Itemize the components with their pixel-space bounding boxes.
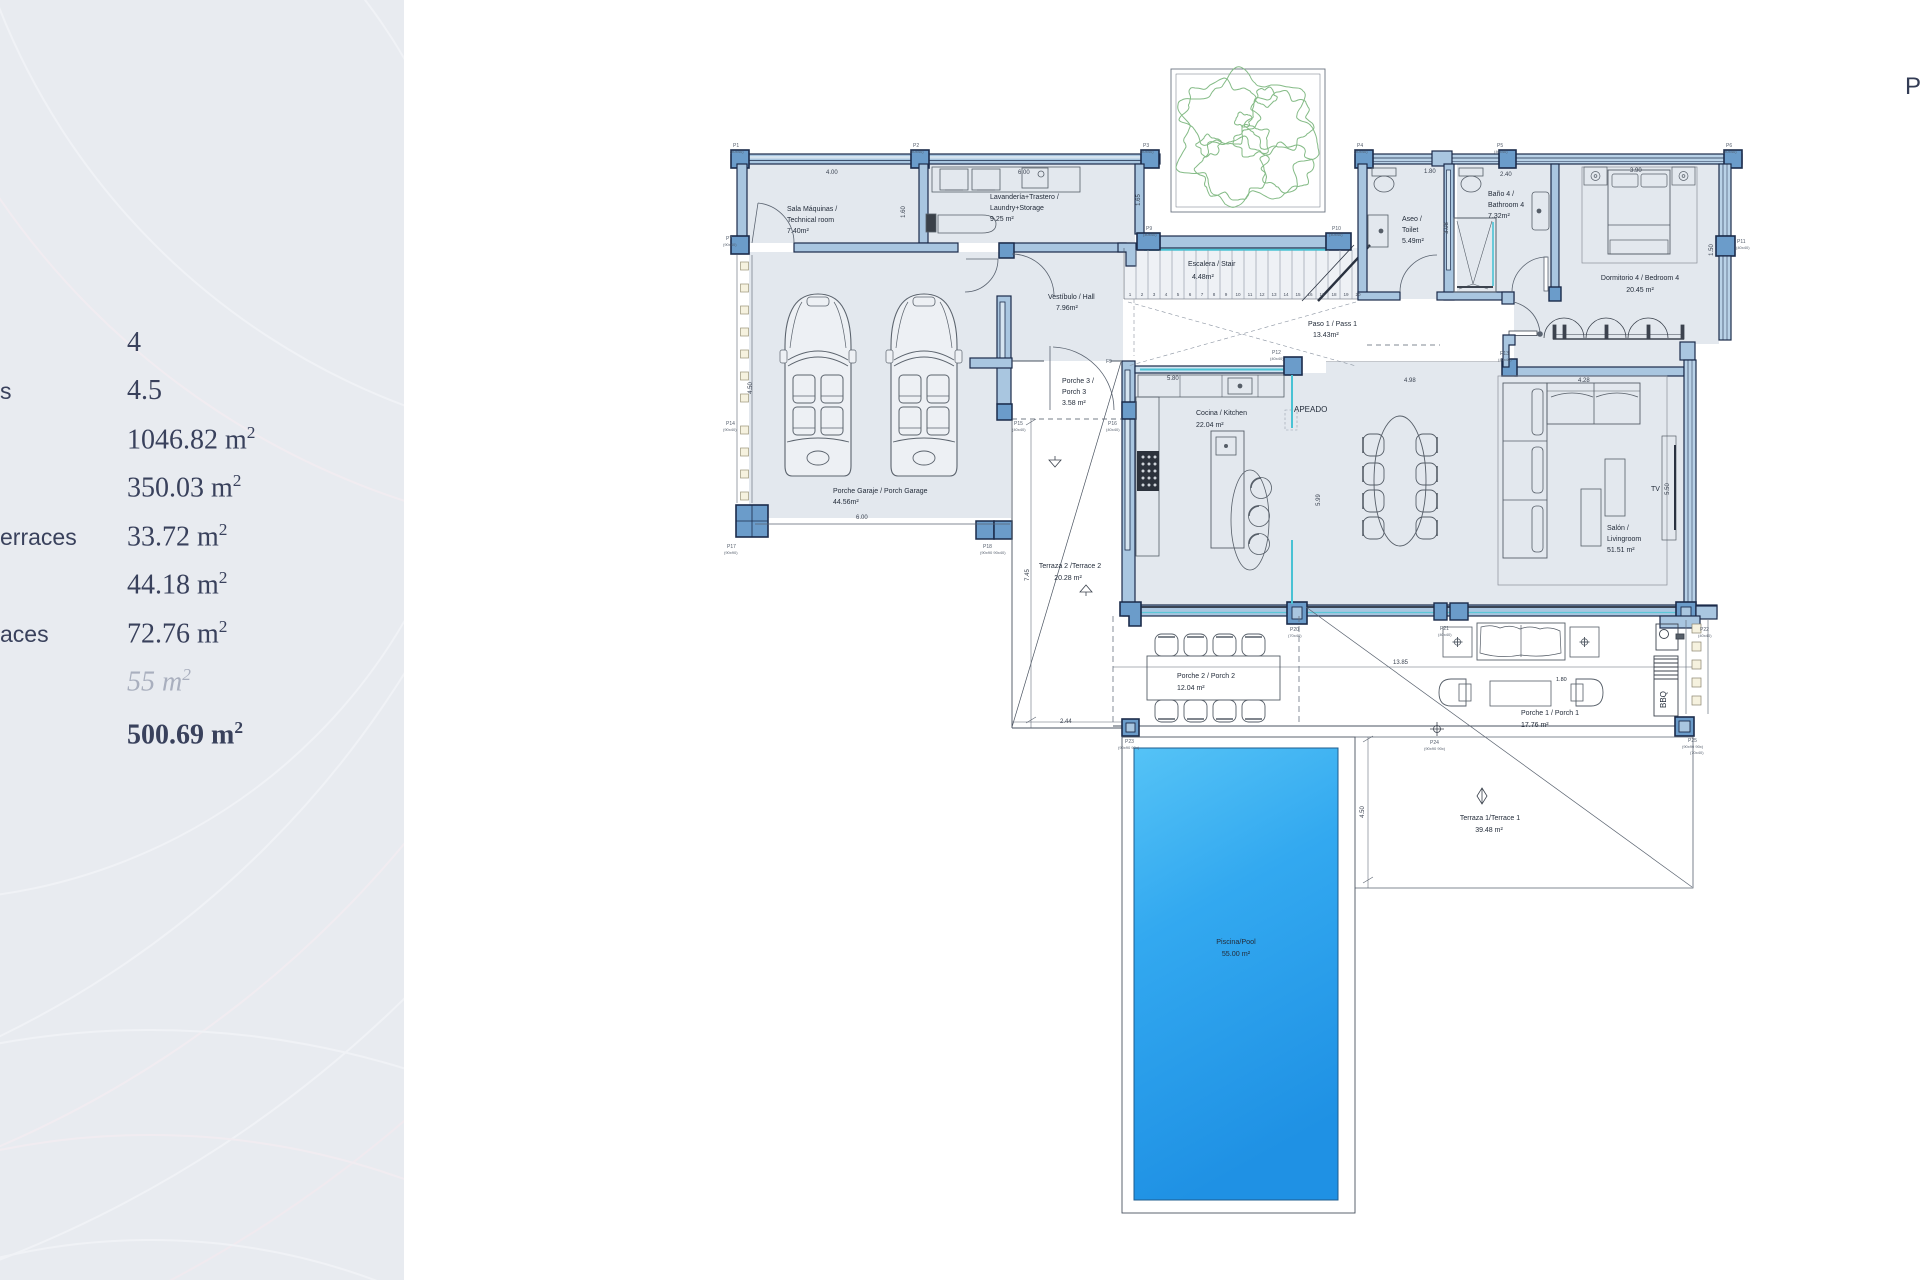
svg-text:8: 8 (1213, 292, 1216, 297)
svg-text:18: 18 (1331, 292, 1337, 297)
svg-text:13.43m²: 13.43m² (1313, 332, 1339, 339)
svg-text:20.28 m²: 20.28 m² (1054, 575, 1082, 582)
svg-text:16: 16 (1307, 292, 1313, 297)
svg-text:7.40m²: 7.40m² (787, 228, 809, 235)
svg-text:Livingroom: Livingroom (1607, 536, 1641, 543)
svg-text:7.32m²: 7.32m² (1488, 213, 1510, 220)
svg-text:Piscina/Pool: Piscina/Pool (1216, 937, 1256, 946)
svg-text:(40x40): (40x40) (1354, 149, 1368, 154)
svg-text:5.80: 5.80 (1167, 376, 1179, 382)
svg-text:BBQ: BBQ (1659, 691, 1668, 708)
svg-text:4.00: 4.00 (826, 170, 838, 176)
svg-text:12.04 m²: 12.04 m² (1177, 685, 1205, 692)
svg-text:1.80: 1.80 (1424, 169, 1436, 175)
svg-text:6.00: 6.00 (856, 515, 868, 521)
svg-text:(90x90 90x): (90x90 90x) (1118, 745, 1140, 750)
svg-text:(40x40): (40x40) (1494, 149, 1508, 154)
svg-text:1.50: 1.50 (1709, 244, 1715, 256)
svg-text:4.28: 4.28 (1578, 378, 1590, 384)
svg-text:(90x90 90x): (90x90 90x) (1424, 746, 1446, 751)
svg-text:4.98: 4.98 (1404, 378, 1416, 384)
svg-text:51.51 m²: 51.51 m² (1607, 547, 1635, 554)
svg-text:(40x40): (40x40) (910, 149, 924, 154)
svg-text:3.08: 3.08 (1444, 222, 1450, 234)
svg-text:Paso 1 / Pass 1: Paso 1 / Pass 1 (1308, 321, 1357, 328)
svg-text:Porche Garaje / Porch Garage: Porche Garaje / Porch Garage (833, 488, 928, 495)
svg-text:(40x40): (40x40) (1723, 149, 1737, 154)
svg-text:17.76 m²: 17.76 m² (1521, 722, 1549, 729)
svg-text:2: 2 (1141, 292, 1144, 297)
svg-text:(40x40): (40x40) (1012, 427, 1026, 432)
svg-text:Lavandería+Trastero /: Lavandería+Trastero / (990, 194, 1059, 201)
svg-text:17: 17 (1319, 292, 1325, 297)
svg-text:20.45 m²: 20.45 m² (1626, 287, 1654, 294)
svg-text:(90x40): (90x40) (723, 427, 737, 432)
svg-text:14: 14 (1283, 292, 1289, 297)
svg-text:3: 3 (1153, 292, 1156, 297)
svg-text:5.49m²: 5.49m² (1402, 238, 1424, 245)
svg-text:7.45: 7.45 (1025, 569, 1031, 581)
svg-text:4.50: 4.50 (748, 382, 754, 394)
svg-text:(90x90 90x): (90x90 90x) (1682, 744, 1704, 749)
svg-text:(70x40): (70x40) (1690, 750, 1704, 755)
svg-text:Sala Máquinas /: Sala Máquinas / (787, 206, 837, 213)
svg-text:1.80: 1.80 (1556, 677, 1567, 683)
svg-text:Porche 1 / Porch 1: Porche 1 / Porch 1 (1521, 710, 1579, 717)
svg-text:2.44: 2.44 (1060, 719, 1072, 725)
svg-text:APEADO: APEADO (1294, 405, 1327, 414)
svg-text:(90x40): (90x40) (723, 242, 737, 247)
svg-text:(40x40): (40x40) (1736, 245, 1750, 250)
svg-text:(40x40): (40x40) (730, 149, 744, 154)
svg-text:10: 10 (1235, 292, 1241, 297)
svg-text:6: 6 (1189, 292, 1192, 297)
svg-text:19: 19 (1343, 292, 1349, 297)
svg-text:5.99: 5.99 (1316, 494, 1322, 506)
svg-text:44.56m²: 44.56m² (833, 499, 859, 506)
svg-text:4.48m²: 4.48m² (1192, 274, 1214, 281)
svg-text:(40x40): (40x40) (1143, 232, 1157, 237)
svg-text:(90x90): (90x90) (724, 550, 738, 555)
svg-text:13.85: 13.85 (1393, 660, 1409, 666)
svg-text:12: 12 (1259, 292, 1265, 297)
svg-text:6.00: 6.00 (1018, 170, 1030, 176)
svg-text:Toilet: Toilet (1402, 227, 1418, 234)
svg-text:F9: F9 (1106, 359, 1112, 365)
svg-text:2.40: 2.40 (1500, 172, 1512, 178)
svg-text:Terraza 1/Terrace 1: Terraza 1/Terrace 1 (1460, 815, 1520, 822)
svg-text:9: 9 (1225, 292, 1228, 297)
svg-text:Terraza 2 /Terrace 2: Terraza 2 /Terrace 2 (1039, 563, 1101, 570)
svg-text:Vestíbulo / Hall: Vestíbulo / Hall (1048, 294, 1095, 301)
svg-text:11: 11 (1248, 292, 1253, 297)
svg-text:Dormitorio 4 / Bedroom 4: Dormitorio 4 / Bedroom 4 (1601, 275, 1679, 282)
svg-text:(40x40): (40x40) (1438, 632, 1452, 637)
svg-text:(40x40): (40x40) (1106, 427, 1120, 432)
svg-text:(40x40): (40x40) (1140, 149, 1154, 154)
svg-text:9.25 m²: 9.25 m² (990, 216, 1014, 223)
svg-text:1: 1 (1129, 292, 1132, 297)
svg-text:Laundry+Storage: Laundry+Storage (990, 205, 1044, 212)
svg-text:Escalera / Stair: Escalera / Stair (1188, 261, 1236, 268)
svg-text:Bathroom 4: Bathroom 4 (1488, 202, 1524, 209)
svg-text:20: 20 (1355, 292, 1361, 297)
svg-text:3.90: 3.90 (1630, 168, 1642, 174)
svg-text:4.50: 4.50 (1360, 806, 1366, 818)
svg-text:15: 15 (1295, 292, 1301, 297)
svg-text:7.96m²: 7.96m² (1056, 305, 1078, 312)
svg-text:(90x90 90x40): (90x90 90x40) (980, 550, 1006, 555)
svg-text:13: 13 (1271, 292, 1277, 297)
svg-text:Porch 3: Porch 3 (1062, 389, 1086, 396)
svg-text:4: 4 (1165, 292, 1168, 297)
svg-text:1.65: 1.65 (1136, 194, 1142, 206)
svg-text:(40x40): (40x40) (1498, 357, 1512, 362)
svg-text:39.48 m²: 39.48 m² (1475, 827, 1503, 834)
svg-text:22.04 m²: 22.04 m² (1196, 422, 1224, 429)
svg-text:Salón /: Salón / (1607, 525, 1629, 532)
svg-text:3.58 m²: 3.58 m² (1062, 400, 1086, 407)
svg-text:(70x40): (70x40) (1288, 633, 1302, 638)
svg-text:Cocina / Kitchen: Cocina / Kitchen (1196, 410, 1247, 417)
svg-text:(40x40): (40x40) (1329, 232, 1343, 237)
svg-text:7: 7 (1201, 292, 1204, 297)
svg-text:Porche 3 /: Porche 3 / (1062, 378, 1094, 385)
svg-text:55.00 m²: 55.00 m² (1222, 949, 1251, 958)
svg-text:TV: TV (1651, 486, 1660, 493)
svg-text:1.60: 1.60 (901, 206, 907, 218)
svg-text:Technical room: Technical room (787, 217, 834, 224)
svg-text:5: 5 (1177, 292, 1180, 297)
svg-text:Aseo /: Aseo / (1402, 216, 1422, 223)
svg-text:Porche 2 / Porch 2: Porche 2 / Porch 2 (1177, 673, 1235, 680)
svg-text:(40x40): (40x40) (1698, 633, 1712, 638)
svg-text:(40x40): (40x40) (1270, 356, 1284, 361)
svg-text:5.50: 5.50 (1665, 483, 1671, 495)
svg-text:Baño 4 /: Baño 4 / (1488, 191, 1514, 198)
